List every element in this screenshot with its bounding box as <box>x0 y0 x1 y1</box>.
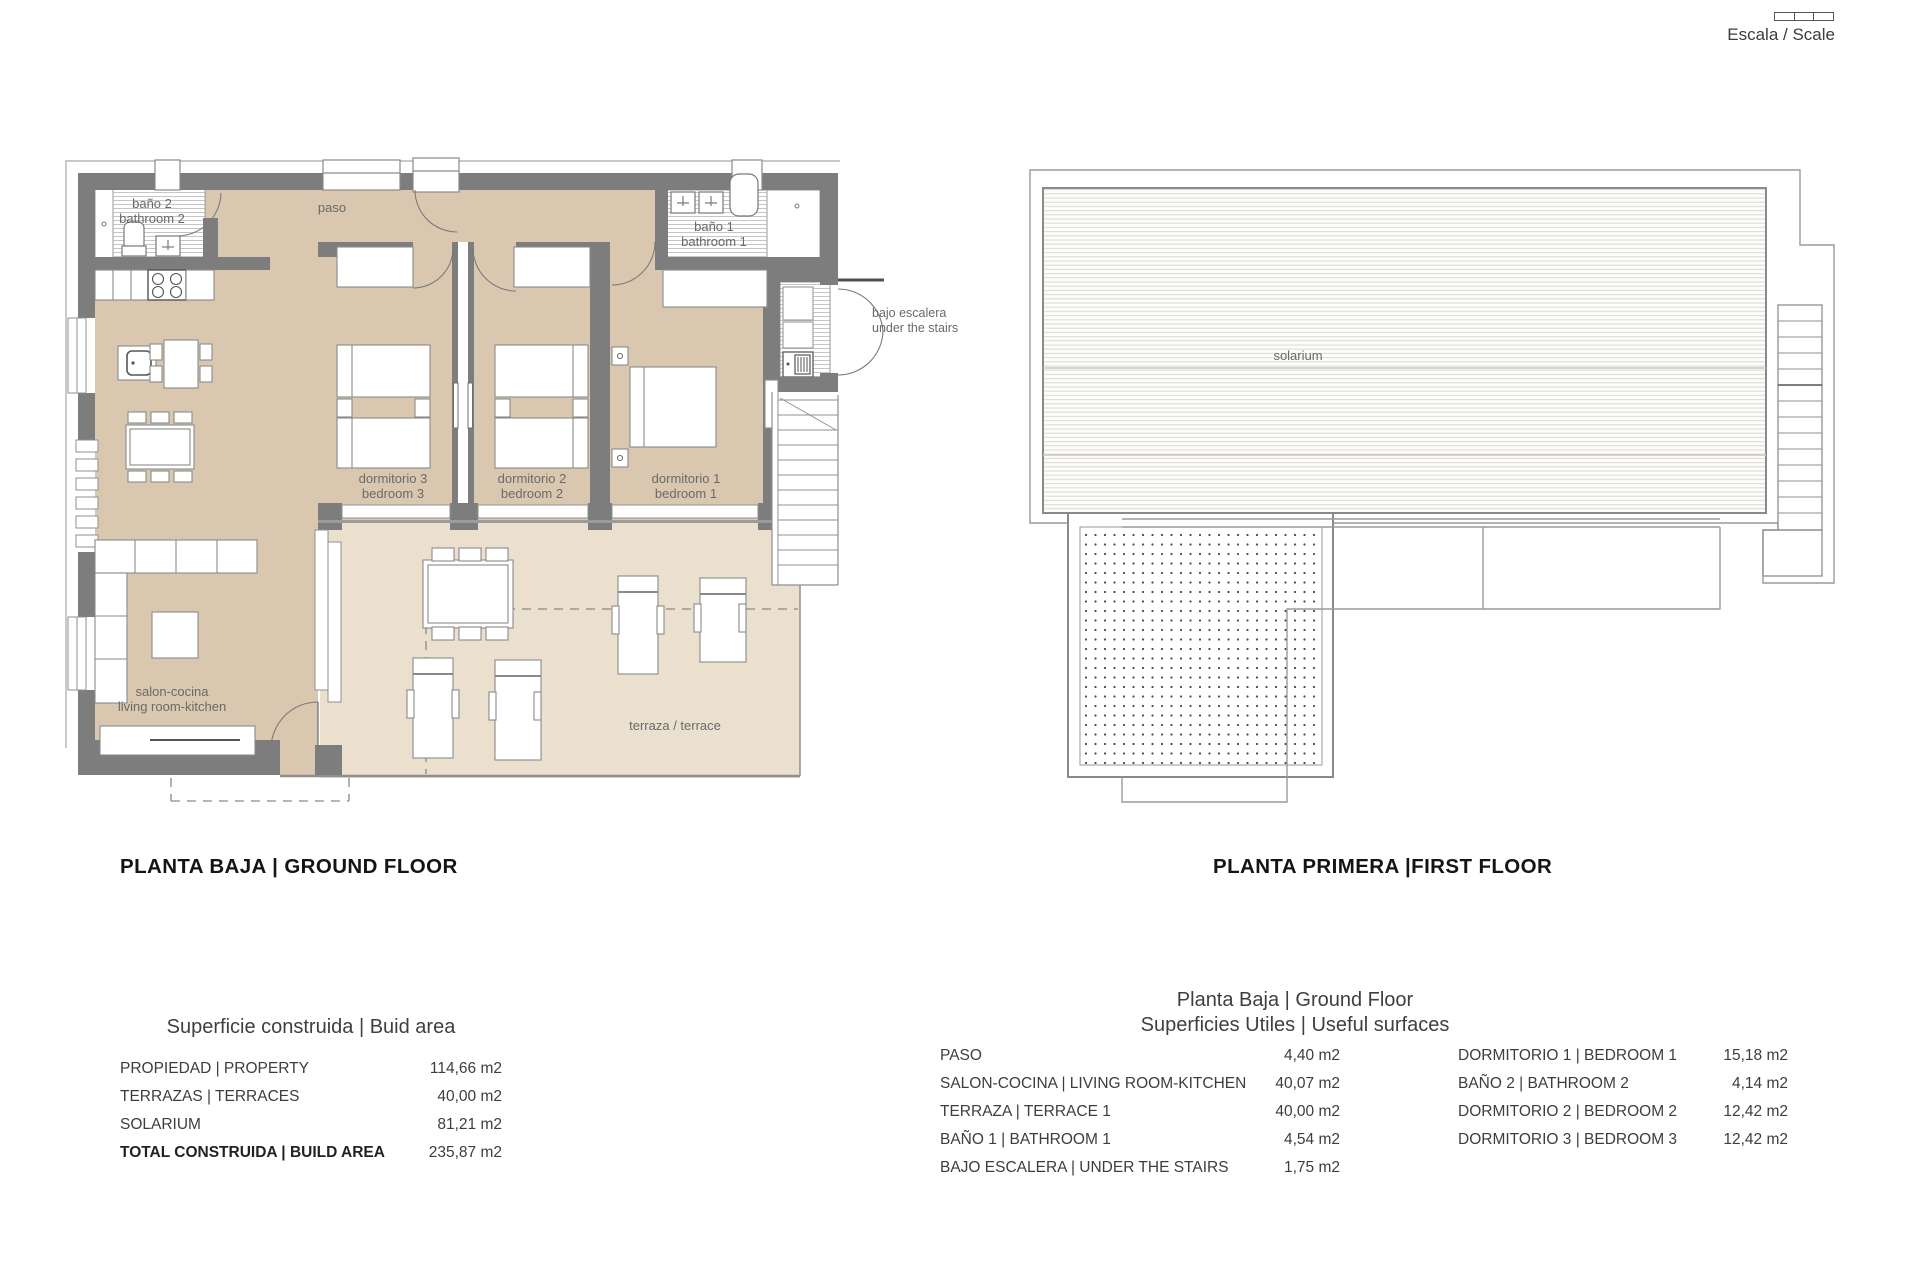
label-bedroom1: dormitorio 1bedroom 1 <box>652 471 721 502</box>
table-row: PROPIEDAD | PROPERTY 114,66 m2 <box>120 1055 502 1083</box>
table-row: PASO 4,40 m2 <box>940 1042 1340 1070</box>
label-bedroom3: dormitorio 3bedroom 3 <box>359 471 428 502</box>
table-row: DORMITORIO 3 | BEDROOM 3 12,42 m2 <box>1458 1126 1788 1154</box>
useful-surfaces-left-column: PASO 4,40 m2 SALON-COCINA | LIVING ROOM-… <box>940 1042 1340 1182</box>
table-row: DORMITORIO 1 | BEDROOM 1 15,18 m2 <box>1458 1042 1788 1070</box>
first-floor-title: PLANTA PRIMERA |FIRST FLOOR <box>1213 855 1552 879</box>
table-row: BAJO ESCALERA | UNDER THE STAIRS 1,75 m2 <box>940 1154 1340 1182</box>
ground-floor-stairs <box>772 392 838 585</box>
build-area-table: Superficie construida | Buid area PROPIE… <box>120 1016 502 1167</box>
label-bathroom2: baño 2bathroom 2 <box>119 196 185 227</box>
scale-label: Escala / Scale <box>1690 25 1835 45</box>
label-living-room: salon-cocinaliving room-kitchen <box>118 684 226 715</box>
dotted-terrace <box>1068 513 1333 777</box>
label-bathroom1: baño 1bathroom 1 <box>681 219 747 250</box>
entrance-porch <box>413 158 459 192</box>
dining-table <box>126 412 194 482</box>
table-row: BAÑO 2 | BATHROOM 2 4,14 m2 <box>1458 1070 1788 1098</box>
ground-floor-title: PLANTA BAJA | GROUND FLOOR <box>120 855 458 879</box>
build-area-table-title: Superficie construida | Buid area <box>120 1016 502 1039</box>
scale-bar <box>1774 12 1834 21</box>
first-floor-stairs <box>1763 305 1822 576</box>
scale-widget: Escala / Scale <box>1690 12 1835 45</box>
west-windows <box>68 318 98 690</box>
label-under-stairs: bajo escaleraunder the stairs <box>872 306 958 336</box>
table-row: SALON-COCINA | LIVING ROOM-KITCHEN 40,07… <box>940 1070 1340 1098</box>
useful-surfaces-right-column: DORMITORIO 1 | BEDROOM 1 15,18 m2 BAÑO 2… <box>1458 1042 1788 1154</box>
label-bedroom2: dormitorio 2bedroom 2 <box>498 471 567 502</box>
under-stairs-storage <box>780 282 830 377</box>
useful-surfaces-heading: Planta Baja | Ground Floor Superficies U… <box>1040 988 1550 1038</box>
table-row: DORMITORIO 2 | BEDROOM 2 12,42 m2 <box>1458 1098 1788 1126</box>
table-row-total: TOTAL CONSTRUIDA | BUILD AREA 235,87 m2 <box>120 1139 502 1167</box>
table-row: TERRAZAS | TERRACES 40,00 m2 <box>120 1083 502 1111</box>
first-floor-plan <box>1030 170 1834 802</box>
table-row: TERRAZA | TERRACE 1 40,00 m2 <box>940 1098 1340 1126</box>
label-terrace: terraza / terrace <box>629 718 721 733</box>
label-paso: paso <box>318 200 346 215</box>
table-row: SOLARIUM 81,21 m2 <box>120 1111 502 1139</box>
label-solarium: solarium <box>1273 348 1322 363</box>
table-row: BAÑO 1 | BATHROOM 1 4,54 m2 <box>940 1126 1340 1154</box>
floor-plans-canvas <box>0 0 1920 830</box>
